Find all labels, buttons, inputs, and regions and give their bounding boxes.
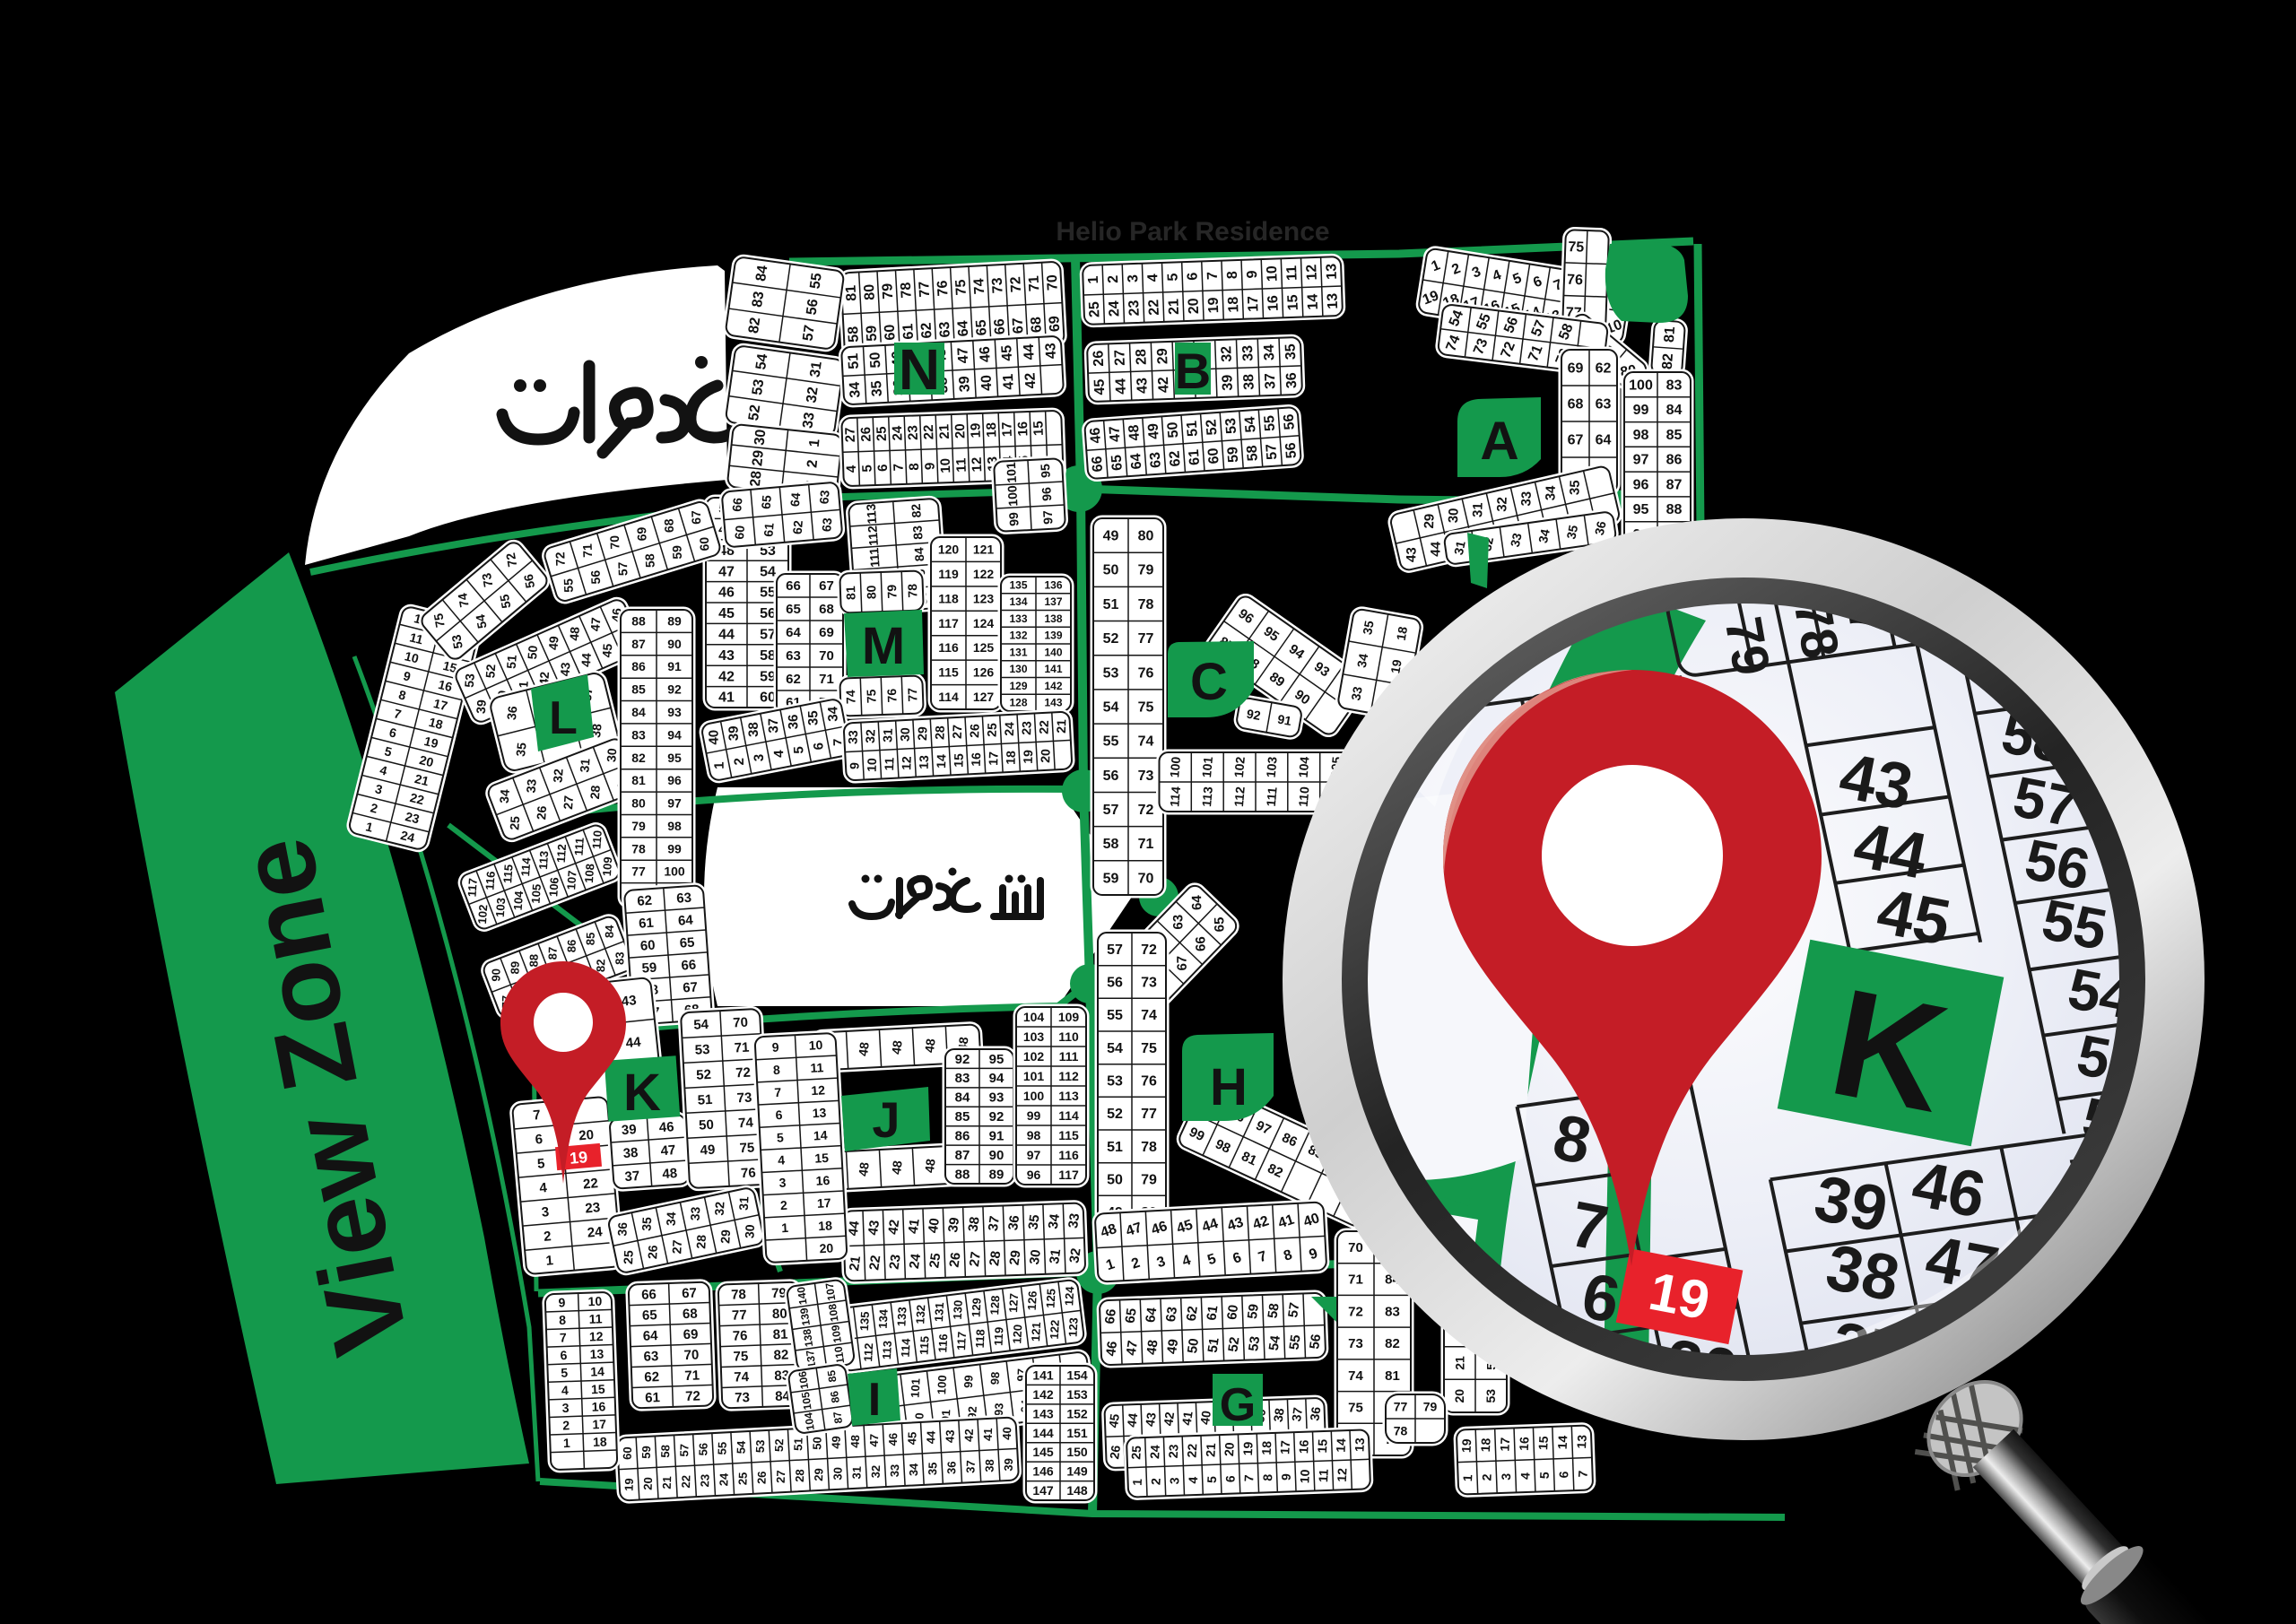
svg-text:64: 64: [677, 913, 693, 929]
svg-text:57: 57: [760, 628, 776, 643]
svg-text:19: 19: [1021, 750, 1036, 764]
svg-text:30: 30: [1446, 508, 1462, 523]
svg-text:92: 92: [667, 682, 682, 697]
svg-text:60: 60: [1224, 1304, 1241, 1321]
svg-text:53: 53: [448, 633, 465, 649]
svg-text:66: 66: [786, 578, 801, 594]
svg-text:120: 120: [938, 543, 960, 557]
svg-text:39: 39: [1002, 1458, 1015, 1472]
svg-text:20: 20: [1186, 298, 1202, 314]
svg-text:116: 116: [935, 1333, 950, 1353]
svg-text:72: 72: [1008, 276, 1024, 293]
svg-text:58: 58: [1245, 445, 1261, 462]
svg-text:62: 62: [1167, 450, 1183, 467]
svg-text:104: 104: [1023, 1010, 1045, 1024]
svg-text:40: 40: [979, 375, 996, 392]
svg-text:76: 76: [1141, 1073, 1157, 1089]
svg-text:14: 14: [590, 1364, 604, 1379]
svg-text:33: 33: [1518, 491, 1535, 507]
svg-text:B: B: [1175, 343, 1211, 399]
svg-text:133: 133: [1009, 612, 1027, 625]
svg-text:68: 68: [819, 602, 834, 617]
svg-text:46: 46: [718, 586, 735, 601]
svg-text:45: 45: [999, 344, 1015, 361]
svg-text:47: 47: [660, 1142, 676, 1159]
svg-text:74: 74: [734, 1369, 750, 1385]
svg-text:15: 15: [951, 753, 966, 768]
svg-text:5: 5: [777, 1130, 785, 1144]
svg-text:53: 53: [462, 673, 477, 688]
svg-text:21: 21: [1054, 719, 1069, 734]
svg-text:21: 21: [1452, 1356, 1466, 1370]
svg-text:N: N: [899, 337, 940, 402]
svg-text:69: 69: [1568, 360, 1584, 376]
svg-text:134: 134: [1009, 595, 1027, 608]
svg-text:4: 4: [778, 1152, 786, 1167]
svg-text:29: 29: [1155, 348, 1171, 364]
svg-text:18: 18: [818, 1218, 833, 1233]
svg-text:30: 30: [752, 429, 770, 447]
svg-text:6: 6: [1185, 272, 1200, 281]
svg-text:57: 57: [1107, 942, 1123, 958]
svg-text:23: 23: [585, 1200, 601, 1216]
svg-text:104: 104: [511, 890, 526, 910]
svg-text:31: 31: [808, 360, 825, 378]
svg-text:100: 100: [935, 1375, 949, 1394]
svg-text:68: 68: [661, 518, 676, 533]
svg-text:71: 71: [580, 543, 596, 558]
svg-text:80: 80: [864, 585, 879, 599]
svg-text:23: 23: [887, 1254, 904, 1271]
svg-text:30: 30: [831, 1467, 844, 1481]
svg-text:7: 7: [1575, 1470, 1589, 1478]
svg-text:85: 85: [1666, 428, 1683, 443]
svg-text:42: 42: [1161, 1411, 1177, 1427]
svg-text:11: 11: [588, 1311, 603, 1326]
svg-text:4: 4: [1145, 274, 1161, 282]
svg-text:75: 75: [739, 1140, 755, 1156]
svg-text:76: 76: [741, 1165, 757, 1181]
svg-text:14: 14: [813, 1128, 829, 1143]
svg-text:100: 100: [664, 864, 685, 879]
svg-text:35: 35: [1360, 620, 1376, 636]
svg-text:43: 43: [1404, 547, 1420, 562]
svg-text:96: 96: [1027, 1168, 1041, 1182]
svg-text:13: 13: [917, 755, 932, 769]
svg-text:35: 35: [1567, 480, 1583, 495]
svg-text:33: 33: [800, 412, 817, 430]
svg-text:19: 19: [1240, 1441, 1256, 1456]
svg-text:67: 67: [682, 1286, 697, 1302]
svg-text:74: 74: [1348, 1368, 1363, 1384]
svg-text:C: C: [1190, 653, 1228, 711]
svg-text:6: 6: [875, 464, 891, 472]
svg-text:112: 112: [1058, 1069, 1079, 1083]
svg-text:102: 102: [475, 904, 490, 925]
svg-text:10: 10: [587, 1294, 602, 1309]
svg-text:64: 64: [787, 491, 803, 507]
svg-text:107: 107: [823, 1281, 839, 1301]
svg-text:68: 68: [683, 1307, 698, 1323]
svg-text:30: 30: [898, 727, 913, 742]
svg-text:49: 49: [545, 636, 561, 651]
svg-text:21: 21: [936, 424, 952, 439]
svg-text:114: 114: [938, 690, 959, 704]
svg-text:16: 16: [815, 1173, 831, 1188]
svg-text:34: 34: [1543, 485, 1559, 501]
svg-text:55: 55: [561, 578, 576, 593]
svg-text:15: 15: [1535, 1436, 1551, 1451]
svg-text:78: 78: [1138, 597, 1154, 612]
svg-text:80: 80: [862, 283, 878, 300]
svg-text:1: 1: [1460, 1474, 1474, 1482]
svg-text:110: 110: [832, 1345, 848, 1364]
svg-text:G: G: [1220, 1379, 1256, 1431]
svg-text:26: 26: [947, 1252, 964, 1269]
svg-text:77: 77: [1141, 1107, 1157, 1122]
svg-text:152: 152: [1066, 1406, 1088, 1420]
svg-text:A: A: [1480, 411, 1518, 471]
svg-text:48: 48: [889, 1039, 905, 1055]
svg-text:118: 118: [938, 591, 959, 605]
svg-text:13: 13: [589, 1346, 604, 1361]
svg-text:98: 98: [1633, 428, 1649, 443]
svg-text:65: 65: [974, 319, 990, 336]
svg-text:12: 12: [1304, 264, 1320, 280]
svg-text:135: 135: [1009, 579, 1027, 592]
svg-text:2: 2: [562, 1418, 570, 1432]
svg-text:86: 86: [565, 940, 578, 953]
svg-text:52: 52: [1103, 631, 1119, 647]
svg-text:142: 142: [1032, 1387, 1054, 1402]
svg-text:39: 39: [957, 376, 973, 393]
svg-text:61: 61: [1187, 448, 1203, 465]
svg-text:77: 77: [1138, 631, 1154, 647]
svg-text:99: 99: [961, 1375, 976, 1388]
svg-text:61: 61: [639, 916, 655, 932]
svg-text:88: 88: [955, 1167, 970, 1182]
svg-text:72: 72: [1348, 1304, 1363, 1319]
svg-text:9: 9: [1279, 1473, 1293, 1481]
svg-text:67: 67: [1175, 956, 1190, 971]
svg-text:5: 5: [1537, 1472, 1552, 1480]
svg-text:71: 71: [1138, 837, 1154, 852]
svg-text:40: 40: [706, 730, 721, 745]
svg-text:59: 59: [864, 325, 880, 342]
svg-text:113: 113: [1199, 786, 1215, 807]
svg-text:38: 38: [746, 722, 761, 737]
svg-text:95: 95: [989, 1052, 1004, 1067]
svg-text:72: 72: [1138, 803, 1154, 818]
svg-text:8: 8: [1225, 271, 1240, 280]
svg-text:3: 3: [1499, 1472, 1513, 1481]
svg-text:31: 31: [577, 758, 592, 773]
svg-text:43: 43: [557, 662, 572, 677]
svg-text:38: 38: [1241, 374, 1257, 390]
svg-text:64: 64: [1143, 1306, 1160, 1324]
svg-text:116: 116: [1058, 1148, 1079, 1162]
svg-text:99: 99: [1633, 403, 1649, 418]
svg-text:65: 65: [1212, 916, 1227, 932]
svg-text:5: 5: [536, 1156, 545, 1172]
svg-text:53: 53: [1246, 1335, 1263, 1352]
svg-text:109: 109: [829, 1324, 844, 1343]
svg-text:66: 66: [1090, 456, 1106, 473]
svg-text:59: 59: [1103, 871, 1119, 886]
svg-text:29: 29: [1006, 1249, 1023, 1266]
svg-text:110: 110: [1296, 786, 1312, 807]
svg-text:4: 4: [561, 1383, 570, 1397]
svg-text:47: 47: [587, 617, 603, 632]
svg-text:L: L: [549, 692, 578, 744]
svg-text:32: 32: [712, 1201, 727, 1216]
svg-text:73: 73: [736, 1090, 752, 1107]
svg-text:151: 151: [1066, 1426, 1088, 1440]
svg-text:48: 48: [856, 1041, 872, 1057]
svg-text:45: 45: [718, 606, 735, 621]
svg-text:21: 21: [1166, 299, 1182, 315]
svg-text:79: 79: [880, 282, 896, 300]
svg-text:20: 20: [1452, 1389, 1466, 1403]
svg-text:12: 12: [899, 756, 914, 770]
svg-text:131: 131: [1009, 647, 1027, 659]
svg-text:104: 104: [802, 1411, 817, 1431]
svg-text:92: 92: [955, 1052, 970, 1067]
svg-text:44: 44: [1428, 541, 1444, 557]
svg-text:51: 51: [1103, 597, 1119, 612]
svg-text:135: 135: [857, 1311, 872, 1331]
svg-text:50: 50: [810, 1437, 823, 1450]
svg-text:77: 77: [631, 864, 646, 879]
svg-text:66: 66: [1102, 1308, 1119, 1325]
svg-text:124: 124: [973, 616, 995, 630]
svg-text:81: 81: [844, 284, 860, 301]
svg-text:1: 1: [712, 761, 727, 769]
svg-text:54: 54: [473, 613, 489, 630]
svg-text:24: 24: [1002, 722, 1017, 736]
svg-text:71: 71: [819, 672, 834, 687]
svg-text:103: 103: [1023, 1029, 1045, 1044]
svg-text:74: 74: [1138, 734, 1154, 750]
svg-text:81: 81: [843, 586, 858, 600]
svg-text:4: 4: [1186, 1476, 1200, 1484]
svg-text:44: 44: [1124, 1412, 1140, 1429]
svg-text:79: 79: [631, 819, 646, 833]
svg-text:111: 111: [572, 837, 587, 855]
svg-text:52: 52: [1225, 1336, 1242, 1353]
svg-text:84: 84: [631, 705, 646, 719]
svg-text:75: 75: [1348, 1401, 1363, 1416]
svg-text:56: 56: [1107, 975, 1123, 990]
svg-text:6: 6: [535, 1132, 544, 1148]
svg-text:34: 34: [1354, 652, 1370, 668]
svg-text:132: 132: [913, 1304, 927, 1324]
svg-text:92: 92: [1246, 707, 1262, 723]
svg-text:16: 16: [969, 752, 984, 767]
svg-text:25: 25: [874, 426, 890, 441]
svg-text:32: 32: [804, 386, 821, 404]
svg-text:82: 82: [1385, 1336, 1400, 1351]
svg-text:54: 54: [1103, 699, 1119, 715]
svg-text:8: 8: [773, 1063, 781, 1077]
svg-text:15: 15: [1285, 294, 1301, 310]
svg-text:27: 27: [1112, 350, 1128, 366]
svg-text:1: 1: [545, 1253, 554, 1269]
svg-text:1: 1: [563, 1436, 571, 1450]
svg-text:98: 98: [1027, 1128, 1041, 1142]
svg-text:99: 99: [1027, 1108, 1041, 1123]
svg-text:60: 60: [760, 690, 776, 706]
svg-text:62: 62: [1596, 360, 1612, 376]
svg-text:65: 65: [1109, 454, 1126, 471]
svg-text:7: 7: [1205, 272, 1221, 281]
svg-text:28: 28: [932, 725, 947, 740]
svg-text:50: 50: [699, 1117, 715, 1133]
svg-text:68: 68: [1029, 317, 1045, 334]
svg-text:44: 44: [578, 652, 594, 667]
svg-text:111: 111: [1264, 786, 1280, 807]
svg-text:83: 83: [750, 291, 767, 308]
svg-text:146: 146: [1032, 1464, 1054, 1479]
svg-text:143: 143: [1032, 1406, 1054, 1420]
svg-text:53: 53: [694, 1042, 710, 1058]
svg-text:40: 40: [926, 1217, 943, 1234]
svg-text:21: 21: [660, 1476, 674, 1489]
svg-text:26: 26: [755, 1471, 769, 1484]
svg-text:74: 74: [455, 592, 471, 608]
svg-text:16: 16: [591, 1399, 605, 1414]
svg-text:25: 25: [621, 1250, 636, 1265]
svg-text:61: 61: [1204, 1305, 1221, 1322]
svg-text:2: 2: [1106, 275, 1121, 284]
svg-text:111: 111: [866, 547, 882, 568]
svg-text:20: 20: [1222, 1442, 1237, 1457]
svg-text:14: 14: [1555, 1435, 1570, 1450]
svg-text:73: 73: [1348, 1336, 1363, 1351]
svg-text:50: 50: [525, 645, 540, 660]
svg-text:101: 101: [909, 1378, 923, 1398]
svg-text:64: 64: [786, 625, 801, 640]
svg-text:57: 57: [1103, 803, 1119, 818]
svg-text:95: 95: [1633, 502, 1649, 517]
svg-text:133: 133: [894, 1307, 909, 1326]
svg-text:22: 22: [1146, 299, 1162, 315]
svg-text:70: 70: [1138, 871, 1154, 886]
svg-text:101: 101: [1023, 1069, 1045, 1083]
svg-text:48: 48: [1144, 1339, 1161, 1356]
svg-text:36: 36: [1005, 1214, 1022, 1231]
svg-text:91: 91: [1276, 712, 1292, 728]
svg-text:71: 71: [684, 1368, 700, 1385]
svg-text:9: 9: [1245, 270, 1260, 279]
svg-text:63: 63: [937, 321, 953, 338]
svg-text:51: 51: [1185, 420, 1201, 437]
svg-text:58: 58: [760, 648, 776, 664]
svg-text:90: 90: [489, 968, 502, 982]
svg-text:23: 23: [1019, 721, 1034, 735]
svg-text:126: 126: [1025, 1290, 1039, 1310]
svg-text:17: 17: [999, 421, 1015, 437]
svg-text:77: 77: [905, 688, 920, 702]
svg-text:3: 3: [561, 1401, 570, 1415]
svg-text:109: 109: [1058, 1010, 1080, 1024]
svg-text:83: 83: [613, 951, 626, 965]
svg-text:10: 10: [1265, 265, 1281, 282]
svg-text:39: 39: [945, 1217, 962, 1234]
svg-text:119: 119: [991, 1326, 1005, 1346]
svg-text:79: 79: [771, 1286, 787, 1302]
svg-text:69: 69: [1047, 316, 1063, 333]
svg-text:39: 39: [474, 699, 489, 715]
svg-text:13: 13: [812, 1105, 827, 1120]
svg-text:33: 33: [524, 778, 539, 794]
svg-text:40: 40: [1000, 1427, 1013, 1440]
svg-text:17: 17: [817, 1195, 832, 1211]
svg-text:5: 5: [859, 465, 874, 473]
svg-text:5: 5: [791, 746, 806, 754]
svg-text:58: 58: [1103, 837, 1119, 852]
svg-text:85: 85: [631, 682, 646, 697]
svg-text:83: 83: [955, 1071, 970, 1086]
svg-text:125: 125: [973, 640, 995, 655]
svg-text:35: 35: [639, 1217, 654, 1232]
svg-text:35: 35: [1025, 1213, 1042, 1230]
svg-text:55: 55: [808, 272, 825, 290]
svg-text:49: 49: [700, 1142, 716, 1159]
svg-text:1: 1: [1086, 275, 1101, 284]
svg-text:13: 13: [1352, 1437, 1367, 1453]
svg-text:76: 76: [1138, 665, 1154, 681]
svg-text:33: 33: [1240, 345, 1257, 361]
svg-text:110: 110: [589, 829, 604, 849]
svg-text:139: 139: [1044, 630, 1062, 642]
svg-text:74: 74: [971, 278, 987, 295]
svg-text:18: 18: [1003, 751, 1018, 765]
svg-text:115: 115: [918, 1336, 932, 1356]
svg-text:29: 29: [915, 726, 930, 741]
svg-text:90: 90: [989, 1148, 1004, 1163]
svg-text:117: 117: [938, 616, 959, 630]
svg-text:88: 88: [526, 954, 540, 968]
svg-text:18: 18: [984, 422, 1000, 438]
svg-text:24: 24: [890, 425, 906, 441]
svg-text:87: 87: [831, 1411, 845, 1424]
svg-text:128: 128: [1009, 697, 1027, 709]
svg-text:108: 108: [582, 864, 596, 884]
svg-text:53: 53: [1107, 1073, 1123, 1089]
svg-text:39: 39: [621, 1122, 637, 1138]
svg-text:58: 58: [642, 553, 657, 568]
svg-text:101: 101: [1199, 756, 1215, 778]
svg-text:9: 9: [922, 462, 937, 470]
svg-text:51: 51: [1205, 1337, 1222, 1354]
svg-text:123: 123: [973, 591, 995, 605]
svg-text:106: 106: [796, 1370, 812, 1390]
svg-text:31: 31: [880, 728, 895, 743]
svg-text:54: 54: [1266, 1334, 1283, 1352]
svg-text:59: 59: [1225, 446, 1241, 463]
svg-text:28: 28: [587, 785, 603, 800]
svg-text:79: 79: [1714, 612, 1781, 680]
svg-text:37: 37: [986, 1215, 1003, 1232]
svg-text:73: 73: [479, 572, 495, 588]
svg-text:127: 127: [1006, 1293, 1021, 1313]
svg-text:52: 52: [696, 1067, 712, 1083]
svg-text:35: 35: [926, 1462, 939, 1475]
svg-text:35: 35: [805, 710, 821, 725]
svg-text:78: 78: [731, 1287, 746, 1303]
svg-text:28: 28: [987, 1250, 1004, 1267]
